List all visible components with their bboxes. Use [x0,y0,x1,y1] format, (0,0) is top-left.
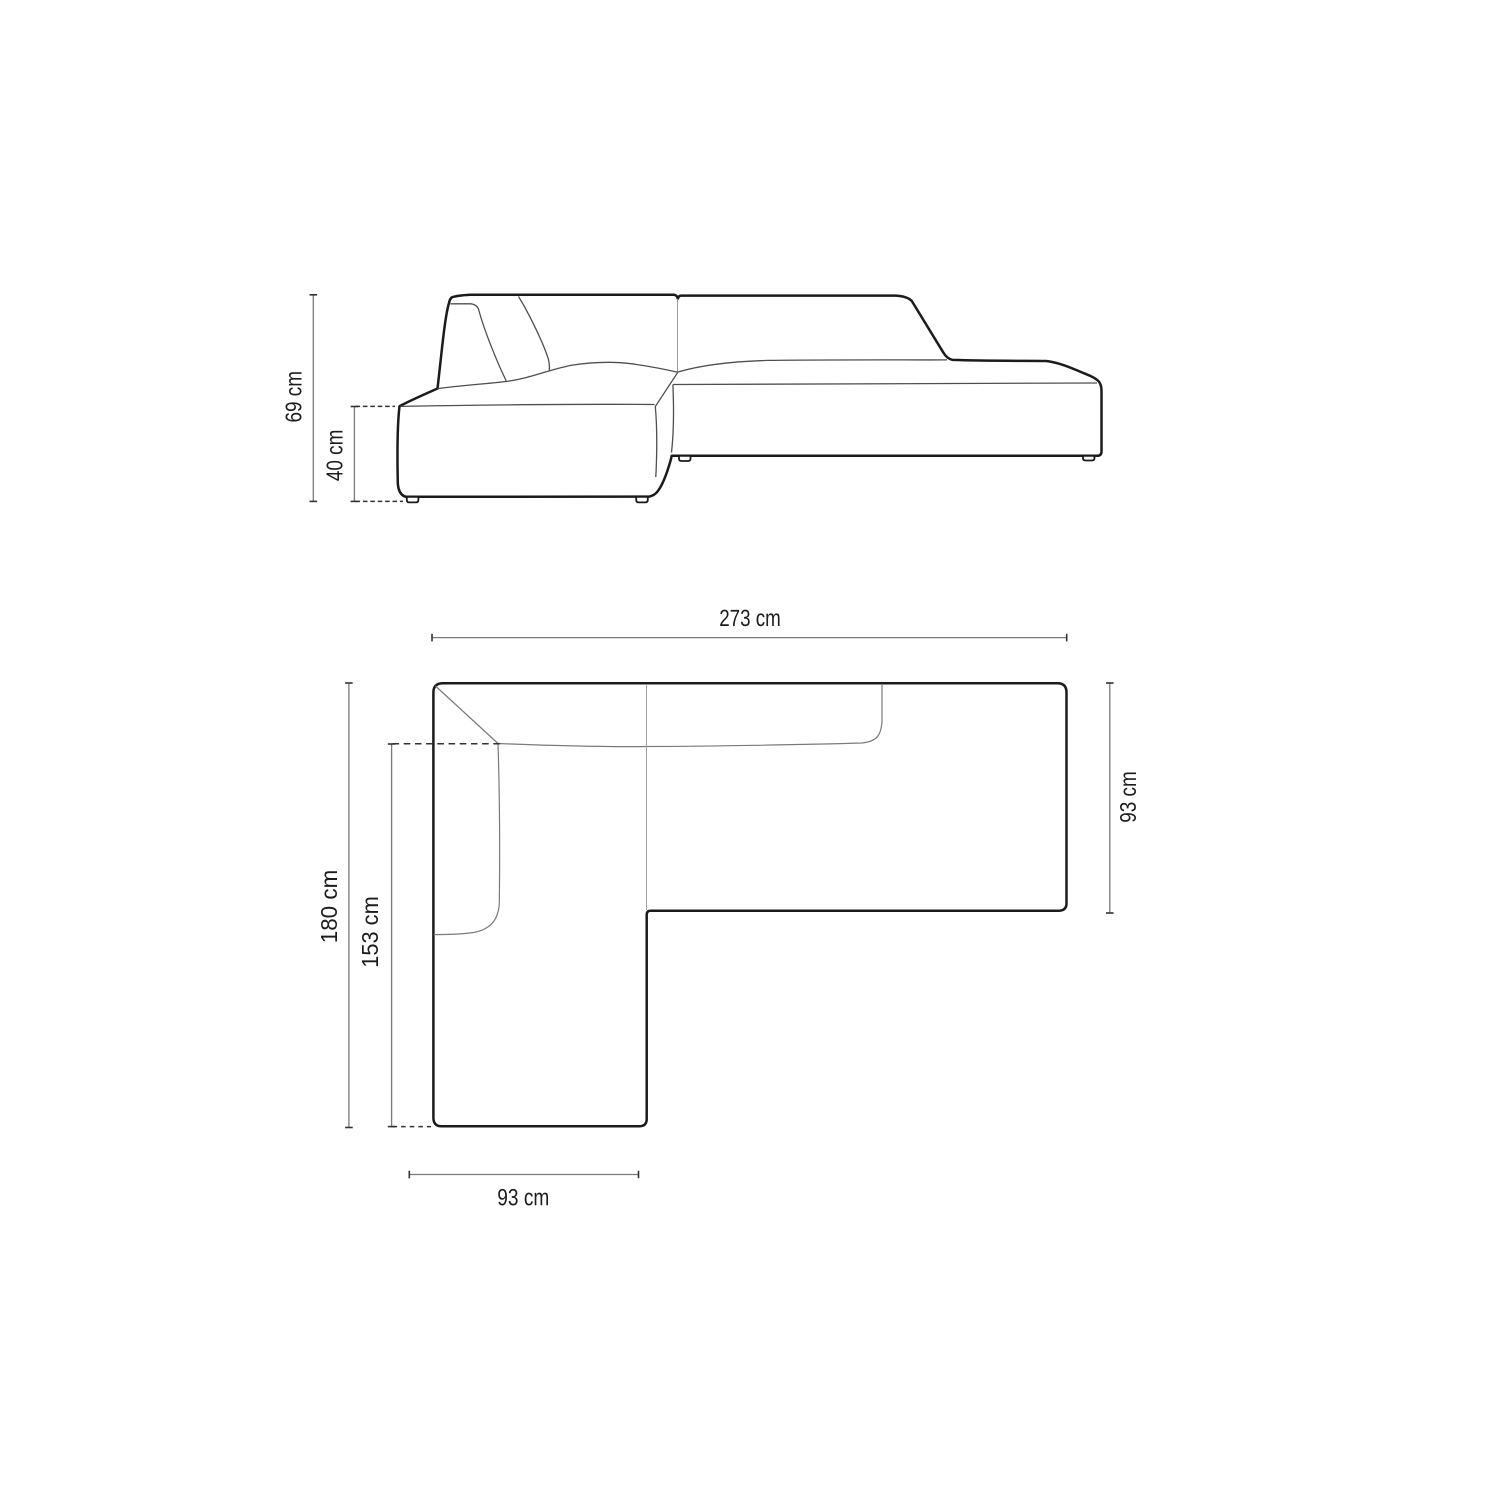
svg-text:93 cm: 93 cm [497,1184,549,1210]
svg-text:273 cm: 273 cm [719,605,781,631]
svg-text:180 cm: 180 cm [316,870,342,944]
svg-text:40 cm: 40 cm [322,430,348,482]
svg-text:69 cm: 69 cm [281,371,307,423]
svg-text:153 cm: 153 cm [357,896,383,968]
svg-text:93 cm: 93 cm [1115,771,1141,823]
